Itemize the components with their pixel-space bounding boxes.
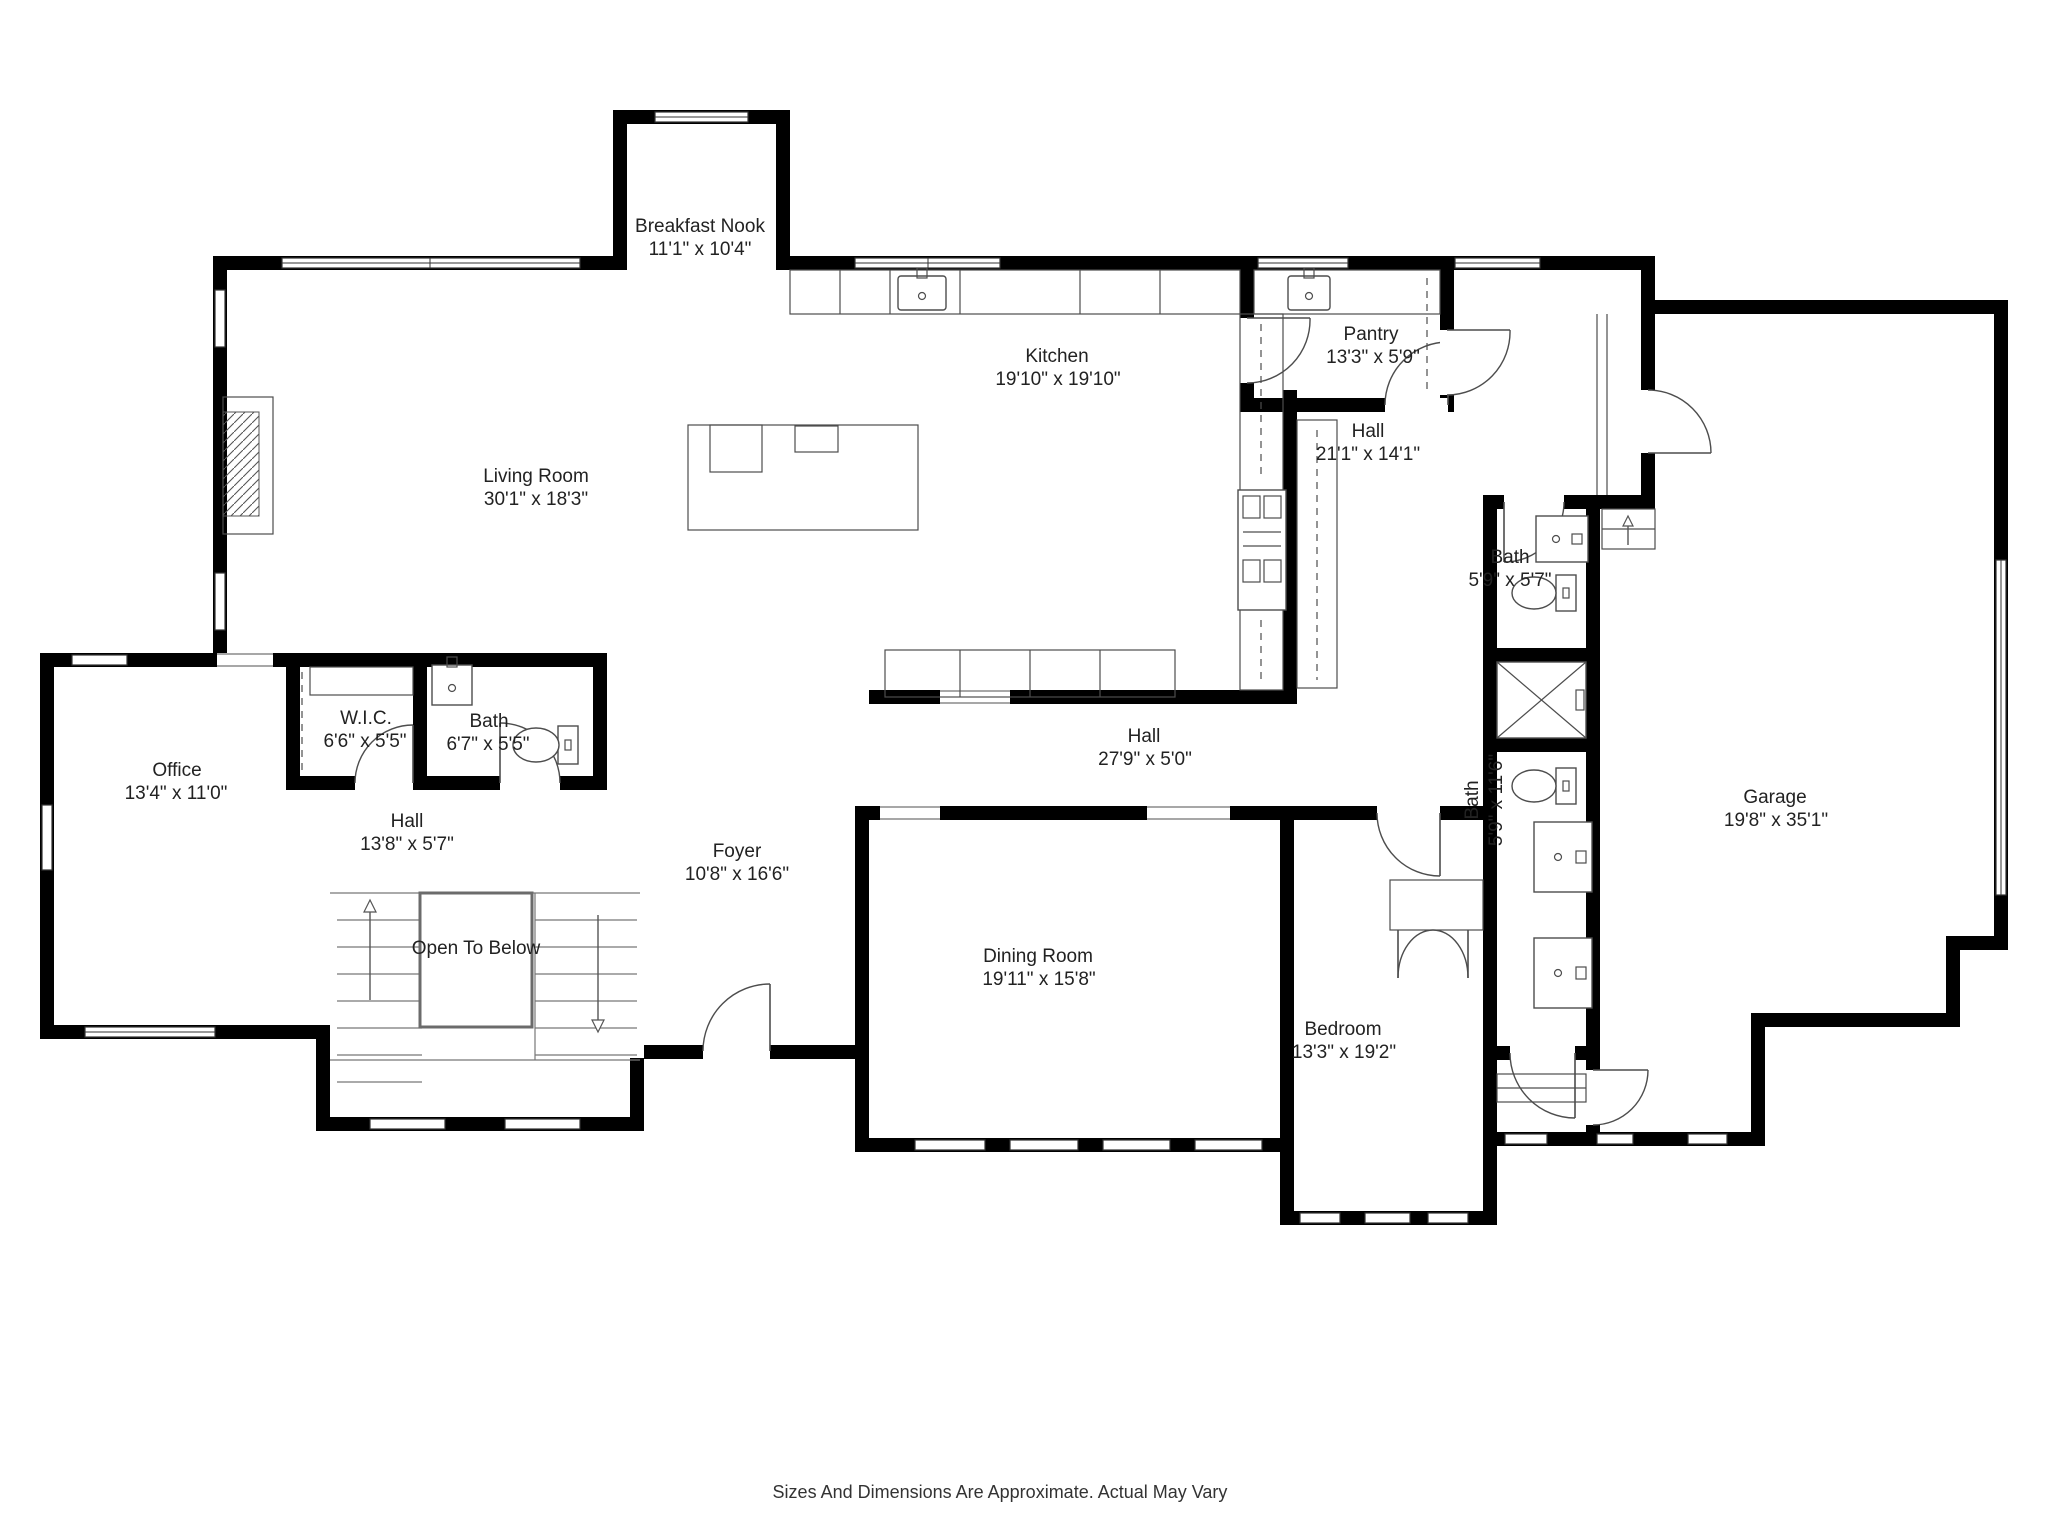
room-dims-bedroom: 13'3" x 19'2" (1292, 1042, 1396, 1063)
long-bath-toilet (1512, 768, 1576, 804)
stairwell-void (420, 893, 532, 1027)
small-bath-vanity (1536, 516, 1588, 562)
pantry-sink (1288, 268, 1330, 310)
disclaimer-text: Sizes And Dimensions Are Approximate. Ac… (773, 1482, 1228, 1502)
room-dims-breakfast-nook: 11'1" x 10'4" (649, 239, 752, 260)
room-dims-living-room: 30'1" x 18'3" (484, 489, 588, 510)
room-label-bath-left: Bath (469, 711, 508, 732)
room-label-breakfast-nook: Breakfast Nook (635, 216, 765, 237)
room-label-wic: W.I.C. (340, 708, 392, 729)
room-dims-hall-center: 27'9" x 5'0" (1098, 749, 1192, 770)
room-label-open-to-below: Open To Below (412, 938, 541, 959)
floorplan-svg: Breakfast Nook 11'1" x 10'4" Living Room… (0, 0, 2048, 1536)
room-label-office: Office (152, 760, 201, 781)
room-dims-dining-room: 19'11" x 15'8" (982, 969, 1095, 990)
room-label-living-room: Living Room (483, 466, 589, 487)
long-bath-vanity-2 (1534, 938, 1592, 1008)
room-label-hall-left: Hall (391, 811, 424, 832)
room-dims-pantry: 13'3" x 5'9" (1326, 347, 1420, 368)
room-label-foyer: Foyer (713, 841, 762, 862)
room-dims-foyer: 10'8" x 16'6" (685, 864, 789, 885)
room-dims-hall-upper: 21'1" x 14'1" (1316, 444, 1420, 465)
room-label-bedroom: Bedroom (1304, 1019, 1381, 1040)
room-dims-wic: 6'6" x 5'5" (323, 731, 406, 752)
long-bath-vanity-1 (1534, 822, 1592, 892)
room-dims-hall-left: 13'8" x 5'7" (360, 834, 454, 855)
floorplan-sheet: Breakfast Nook 11'1" x 10'4" Living Room… (0, 0, 2048, 1536)
kitchen-sink (898, 268, 946, 310)
room-label-garage: Garage (1743, 787, 1806, 808)
room-label-bath-small: Bath (1490, 547, 1529, 568)
room-dims-office: 13'4" x 11'0" (125, 783, 228, 804)
room-dims-kitchen: 19'10" x 19'10" (995, 369, 1120, 390)
fireplace (223, 397, 273, 534)
room-label-bath-long: Bath (1462, 780, 1483, 819)
room-dims-bath-long: 5'9" x 11'6" (1486, 754, 1507, 846)
stairs (330, 893, 640, 1082)
room-label-dining-room: Dining Room (983, 946, 1093, 967)
kitchen-island (688, 425, 918, 530)
range (1238, 490, 1286, 610)
room-label-hall-center: Hall (1128, 726, 1161, 747)
room-labels: Breakfast Nook 11'1" x 10'4" Living Room… (125, 216, 1829, 1063)
room-label-pantry: Pantry (1344, 324, 1399, 345)
shower (1497, 662, 1586, 738)
room-dims-bath-small: 5'9" x 5'7" (1468, 570, 1551, 591)
room-label-hall-upper: Hall (1352, 421, 1385, 442)
room-label-kitchen: Kitchen (1025, 346, 1088, 367)
room-dims-bath-left: 6'7" x 5'5" (446, 734, 529, 755)
front-door-arc (703, 984, 770, 1051)
room-dims-garage: 19'8" x 35'1" (1724, 810, 1828, 831)
